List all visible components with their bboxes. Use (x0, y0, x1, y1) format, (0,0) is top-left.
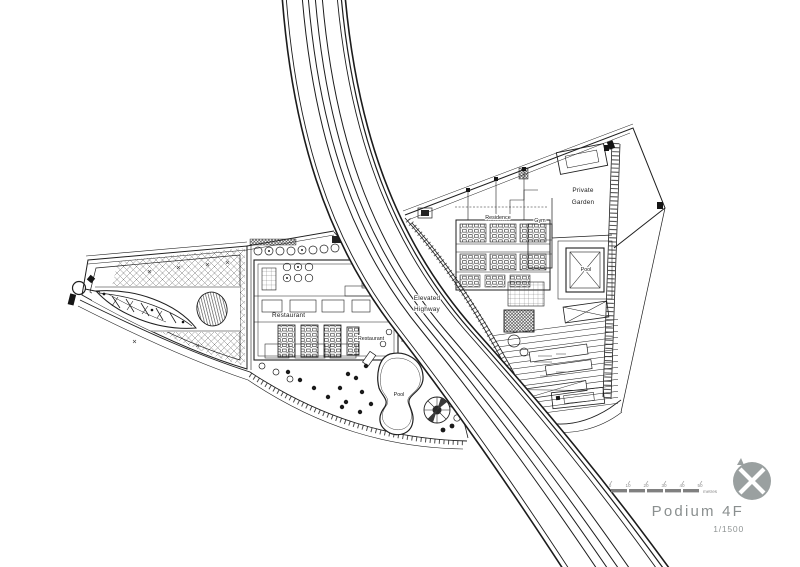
compass-north-icon (733, 458, 771, 500)
label-elevated-highway-2: Highway (414, 306, 441, 313)
site-plan-drawing: Restaurant Restaurant Pool Pool Residenc… (0, 0, 800, 567)
left-wing-parcel (68, 242, 251, 370)
scale-tick-30: 30 (661, 483, 667, 488)
scale-tick-50: 50 (697, 483, 703, 488)
drawing-title: Podium 4F (652, 503, 744, 520)
scale-tick-10: 10 (625, 483, 631, 488)
label-private-garden-1: Private (572, 187, 594, 194)
scale-tick-40: 40 (679, 483, 685, 488)
label-restaurant: Restaurant (272, 312, 305, 319)
residence-block (455, 167, 550, 290)
label-elevated-highway-1: Elevated (414, 295, 441, 302)
title-block: Podium 4F 1/1500 (652, 503, 744, 534)
scale-tick-20: 20 (643, 483, 649, 488)
drawing-scale: 1/1500 (713, 524, 744, 534)
label-gym: Gym (534, 218, 546, 224)
label-private-garden-2: Garden (572, 199, 595, 206)
circular-plaza (424, 397, 450, 423)
residence-pool (558, 241, 612, 323)
label-pool-residence: Pool (581, 267, 592, 273)
scale-unit: metres (703, 489, 718, 494)
scale-tick-0: 0 (609, 483, 612, 488)
plan-canvas: Restaurant Restaurant Pool Pool Residenc… (0, 0, 800, 567)
label-pool-landscape: Pool (394, 392, 405, 398)
label-residence: Residence (485, 215, 510, 221)
label-restaurant-2: Restaurant (358, 336, 385, 342)
scale-bar: 0 10 20 30 40 50 metres (609, 481, 718, 494)
